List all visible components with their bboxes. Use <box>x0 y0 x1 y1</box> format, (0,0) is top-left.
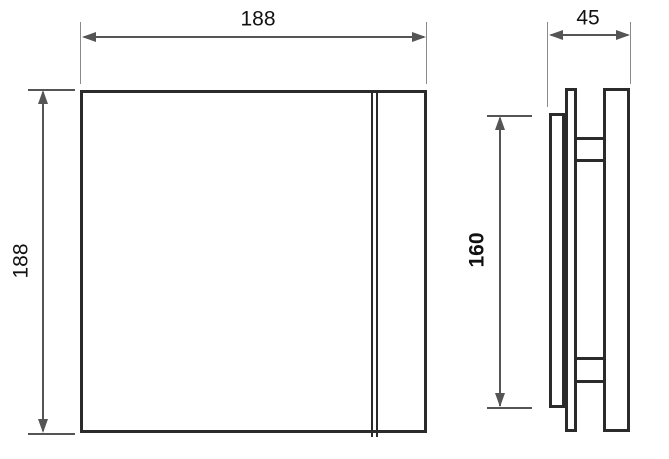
side-height-tick-bottom <box>487 407 532 409</box>
side-height-tick-top <box>487 115 532 117</box>
side-body-front-flange <box>565 88 577 432</box>
front-width-dimension-label: 188 <box>240 9 275 30</box>
side-height-dimension-label: 160 <box>467 232 488 267</box>
side-height-arrowhead-down-icon <box>495 393 505 407</box>
height-tick-bottom <box>28 433 75 435</box>
height-arrowhead-down-icon <box>38 419 48 433</box>
side-upper-band-top-line <box>577 137 603 140</box>
depth-arrowhead-right-icon <box>616 30 630 40</box>
depth-arrowhead-left-icon <box>549 30 563 40</box>
width-arrowhead-left-icon <box>82 32 96 42</box>
width-arrowhead-right-icon <box>412 32 426 42</box>
width-extension-line-right <box>426 22 427 84</box>
height-tick-top <box>28 89 75 91</box>
side-height-arrowhead-up-icon <box>495 116 505 130</box>
side-lower-band-top-line <box>577 357 603 360</box>
front-height-dimension-label: 188 <box>11 243 32 278</box>
side-front-cover-plate <box>549 113 565 408</box>
side-upper-band-bottom-line <box>577 159 603 162</box>
technical-dimension-drawing: 188 188 45 160 <box>0 0 669 459</box>
depth-extension-line-left <box>547 22 548 107</box>
front-panel-groove-line-1 <box>371 90 373 437</box>
depth-extension-line-right <box>630 22 631 84</box>
height-arrowhead-up-icon <box>38 90 48 104</box>
front-panel-groove-line-2 <box>376 90 378 437</box>
side-height-dimension-line <box>499 118 501 406</box>
width-dimension-line <box>84 36 424 38</box>
height-dimension-line <box>42 92 44 431</box>
width-extension-line-left <box>80 22 81 84</box>
side-lower-band-bottom-line <box>577 380 603 383</box>
side-depth-dimension-label: 45 <box>576 8 599 29</box>
side-body-back-section <box>603 88 630 432</box>
front-panel-outline <box>80 90 427 433</box>
